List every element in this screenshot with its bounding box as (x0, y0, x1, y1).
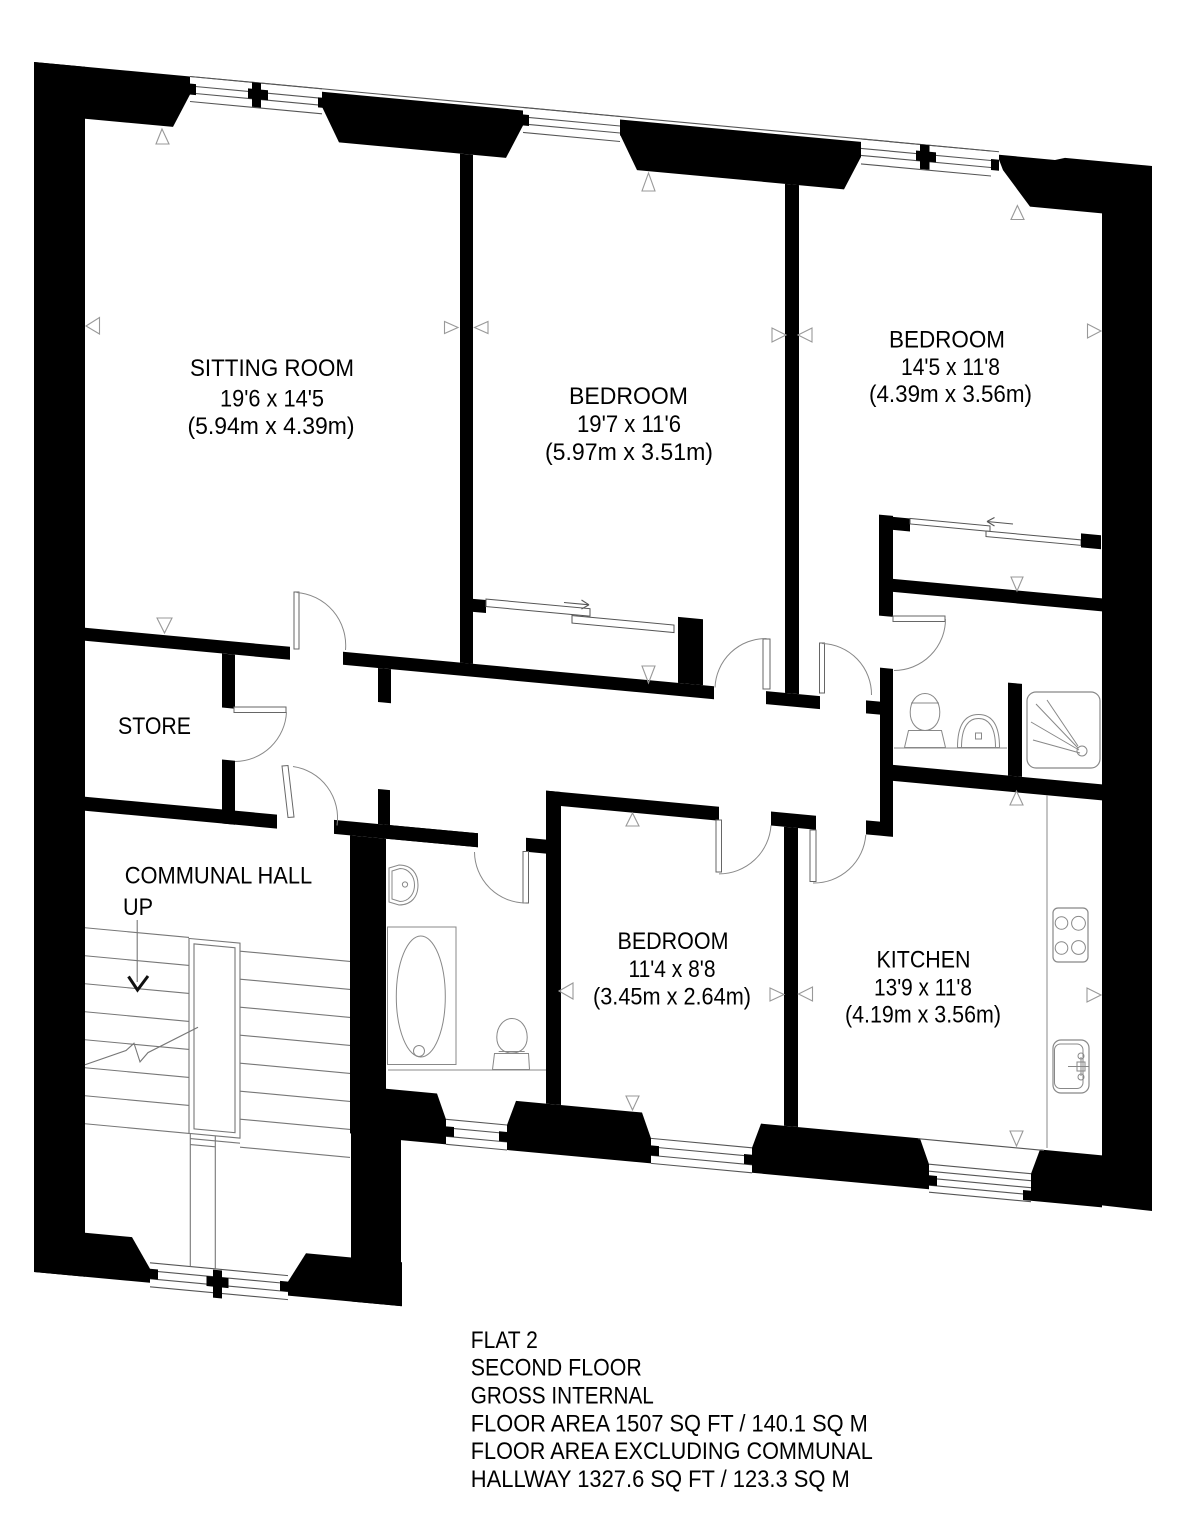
svg-text:11'4 x 8'8: 11'4 x 8'8 (629, 956, 716, 983)
svg-text:(5.97m x 3.51m): (5.97m x 3.51m) (545, 439, 713, 466)
svg-text:14'5 x 11'8: 14'5 x 11'8 (901, 354, 1000, 381)
svg-text:(3.45m x 2.64m): (3.45m x 2.64m) (593, 984, 751, 1011)
svg-text:(4.19m x 3.56m): (4.19m x 3.56m) (845, 1002, 1001, 1029)
svg-text:19'6 x 14'5: 19'6 x 14'5 (220, 386, 324, 413)
svg-text:(5.94m x 4.39m): (5.94m x 4.39m) (188, 413, 355, 440)
svg-text:BEDROOM: BEDROOM (618, 928, 729, 955)
svg-text:SECOND FLOOR: SECOND FLOOR (471, 1355, 642, 1382)
svg-text:FLOOR AREA EXCLUDING COMMUNAL: FLOOR AREA EXCLUDING COMMUNAL (471, 1438, 873, 1465)
svg-text:STORE: STORE (118, 713, 191, 740)
svg-text:KITCHEN: KITCHEN (877, 947, 971, 974)
svg-text:BEDROOM: BEDROOM (889, 327, 1005, 354)
svg-text:GROSS INTERNAL: GROSS INTERNAL (471, 1383, 654, 1410)
svg-text:FLAT 2: FLAT 2 (471, 1327, 538, 1354)
svg-text:19'7 x 11'6: 19'7 x 11'6 (577, 411, 681, 438)
svg-text:BEDROOM: BEDROOM (569, 383, 688, 410)
svg-text:SITTING ROOM: SITTING ROOM (190, 355, 354, 382)
svg-text:COMMUNAL HALL: COMMUNAL HALL (125, 863, 313, 890)
svg-text:HALLWAY 1327.6 SQ FT / 123.3 S: HALLWAY 1327.6 SQ FT / 123.3 SQ M (471, 1466, 850, 1493)
svg-text:FLOOR AREA 1507 SQ FT / 140.1: FLOOR AREA 1507 SQ FT / 140.1 SQ M (471, 1411, 868, 1438)
svg-text:(4.39m x 3.56m): (4.39m x 3.56m) (869, 381, 1032, 408)
svg-text:UP: UP (123, 894, 153, 921)
svg-text:13'9 x 11'8: 13'9 x 11'8 (874, 975, 972, 1002)
